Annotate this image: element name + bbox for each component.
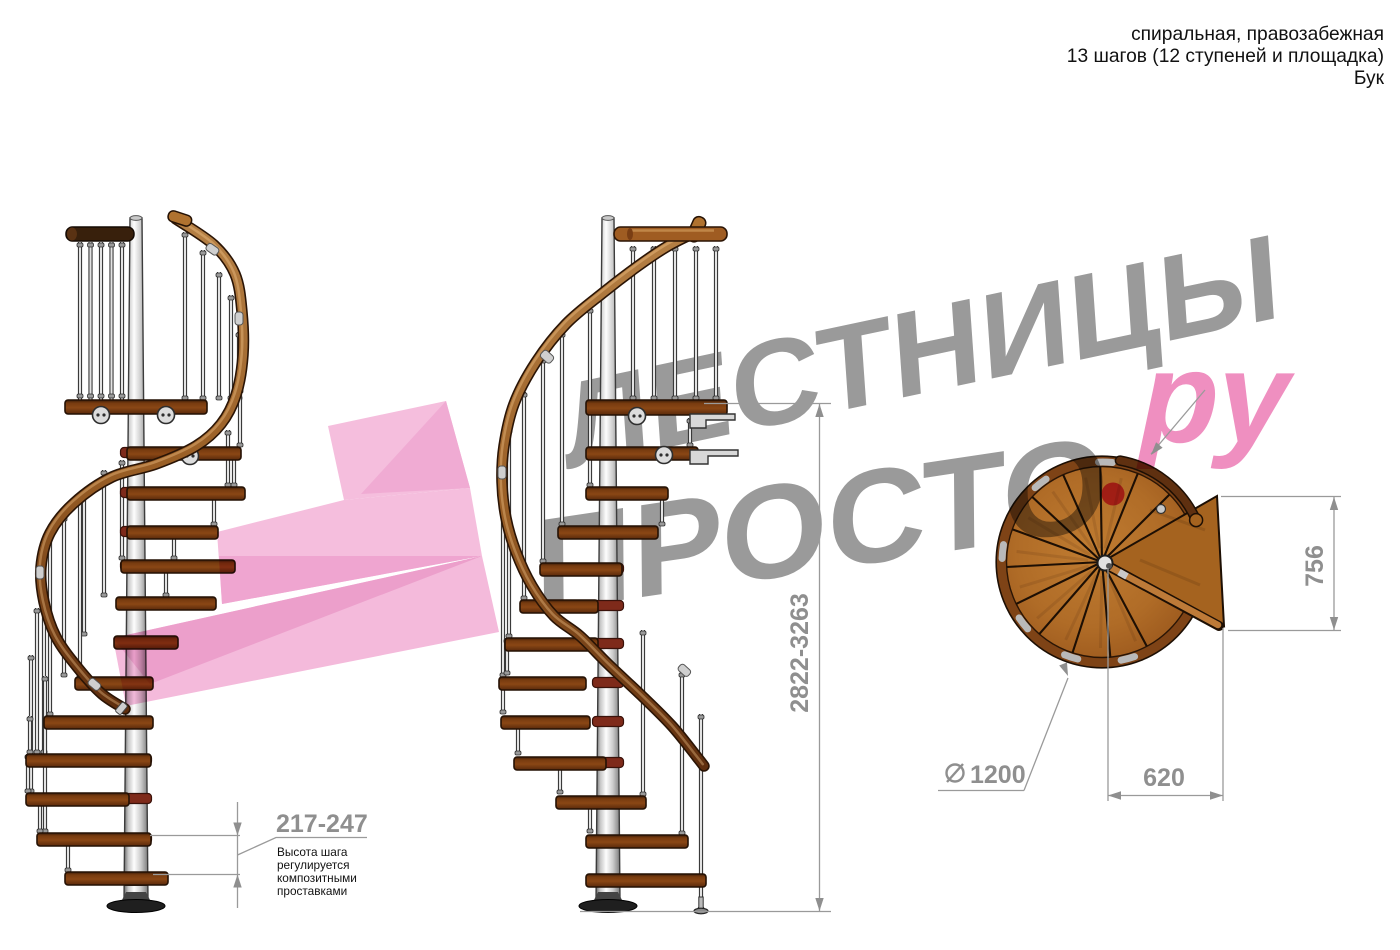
svg-text:Бук: Бук	[1354, 68, 1385, 89]
svg-text:1200: 1200	[970, 761, 1026, 789]
svg-text:спиральная, правозабежная: спиральная, правозабежная	[1131, 24, 1384, 45]
svg-text:Высота шагарегулируетсякомпози: Высота шагарегулируетсякомпозитнымипрост…	[277, 845, 357, 898]
svg-text:620: 620	[1143, 764, 1185, 792]
svg-text:756: 756	[1301, 545, 1329, 587]
svg-text:13 шагов (12 ступеней и площад: 13 шагов (12 ступеней и площадка)	[1067, 46, 1384, 67]
svg-text:2822-3263: 2822-3263	[786, 593, 814, 713]
svg-text:217-247: 217-247	[276, 810, 368, 838]
